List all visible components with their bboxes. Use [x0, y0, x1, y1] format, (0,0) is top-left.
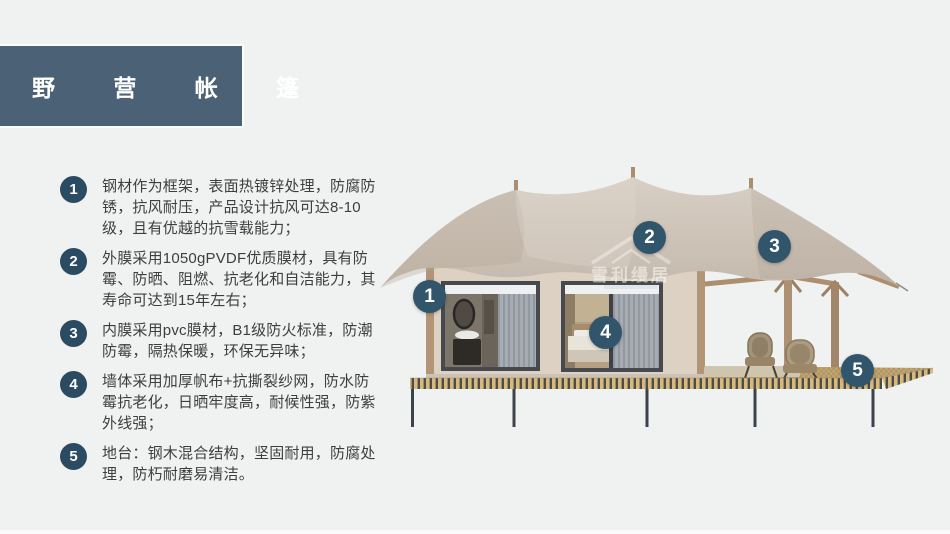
tent-photo-rendering: 雪利缦居	[375, 148, 950, 438]
bottom-edge-strip	[0, 530, 950, 534]
corner-post-right	[697, 268, 705, 380]
mirror	[454, 300, 474, 328]
image-marker-4: 4	[589, 316, 622, 349]
vanity	[453, 339, 481, 365]
image-marker-3: 3	[758, 230, 791, 263]
porch-pole-2	[831, 282, 839, 378]
image-marker-5: 5	[841, 354, 874, 387]
image-marker-2: 2	[633, 221, 666, 254]
image-marker-1: 1	[413, 280, 446, 313]
curtain	[498, 294, 536, 367]
tent-illustration: 雪利缦居 1 2 3 4 5	[0, 0, 950, 534]
sink	[455, 331, 479, 340]
shelf	[484, 300, 494, 334]
deck-edge-band	[410, 378, 882, 389]
window-bathroom	[441, 281, 540, 371]
deck-legs	[413, 389, 874, 427]
watermark-text: 雪利缦居	[591, 265, 671, 285]
